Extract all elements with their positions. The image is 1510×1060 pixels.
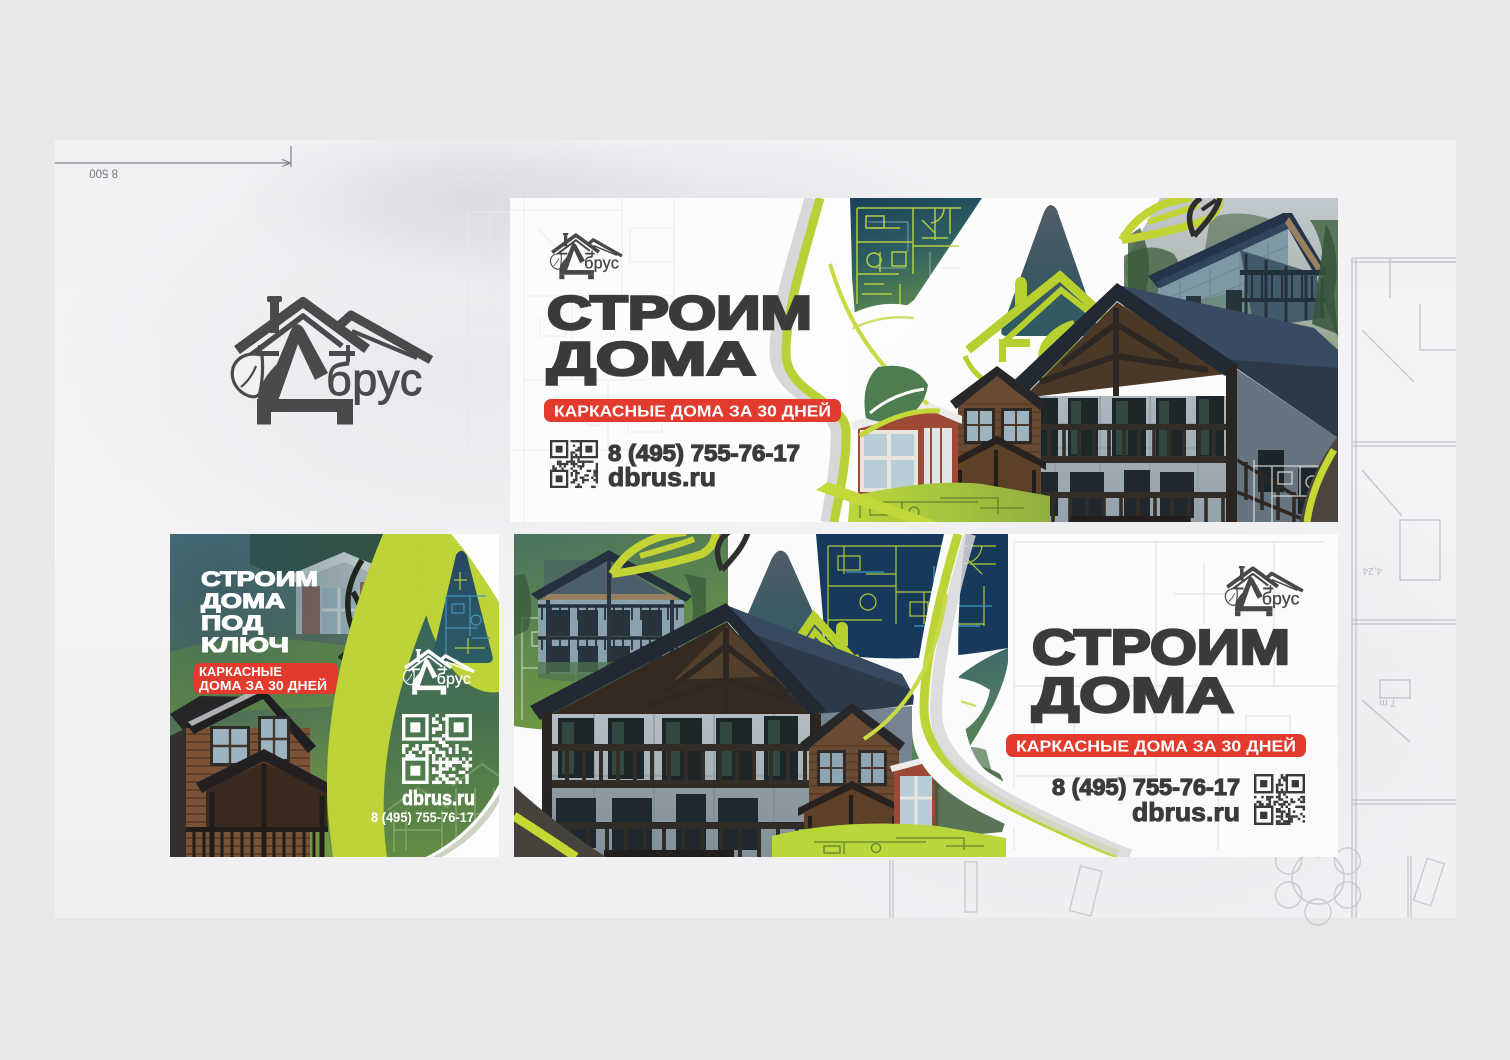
- svg-text:dbrus.ru: dbrus.ru: [1132, 797, 1240, 827]
- svg-text:КАРКАСНЫЕ: КАРКАСНЫЕ: [199, 665, 282, 679]
- svg-text:8 500: 8 500: [89, 167, 118, 179]
- svg-text:ДОМА: ДОМА: [201, 590, 285, 613]
- svg-text:КАРКАСНЫЕ ДОМА ЗА 30 ДНЕЙ: КАРКАСНЫЕ ДОМА ЗА 30 ДНЕЙ: [554, 403, 831, 421]
- svg-text:КАРКАСНЫЕ ДОМА ЗА 30 ДНЕЙ: КАРКАСНЫЕ ДОМА ЗА 30 ДНЕЙ: [1016, 738, 1296, 756]
- svg-text:4,24: 4,24: [1362, 565, 1382, 576]
- svg-text:КЛЮЧ: КЛЮЧ: [201, 634, 289, 657]
- svg-text:ДОМА: ДОМА: [547, 332, 756, 385]
- svg-text:ДОМА: ДОМА: [1032, 669, 1234, 723]
- svg-text:брус: брус: [437, 671, 471, 688]
- svg-text:брус: брус: [584, 255, 619, 273]
- svg-text:СТРОИМ: СТРОИМ: [1032, 621, 1290, 675]
- svg-text:7 m: 7 m: [1379, 697, 1396, 708]
- svg-text:брус: брус: [326, 354, 423, 405]
- svg-text:ПОД: ПОД: [201, 612, 263, 635]
- svg-text:dbrus.ru: dbrus.ru: [402, 788, 475, 810]
- svg-text:ДОМА ЗА 30 ДНЕЙ: ДОМА ЗА 30 ДНЕЙ: [199, 678, 327, 693]
- svg-text:8 (495) 755-76-17: 8 (495) 755-76-17: [371, 810, 474, 825]
- svg-text:dbrus.ru: dbrus.ru: [608, 462, 716, 492]
- svg-text:СТРОИМ: СТРОИМ: [201, 568, 318, 591]
- svg-text:брус: брус: [1262, 589, 1300, 609]
